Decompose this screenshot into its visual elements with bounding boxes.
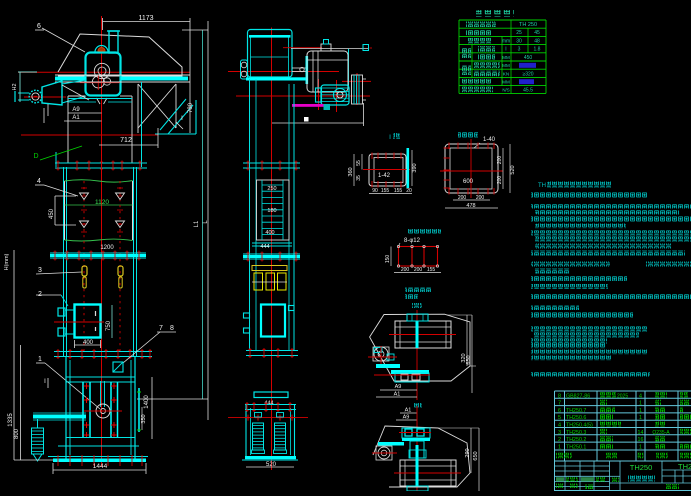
svg-text:TH2: TH2 xyxy=(678,462,691,471)
svg-text:250: 250 xyxy=(267,186,276,192)
svg-text:A1: A1 xyxy=(394,392,401,398)
svg-text:600: 600 xyxy=(463,179,474,185)
svg-text:7: 7 xyxy=(558,401,561,407)
svg-text:155: 155 xyxy=(427,267,436,273)
svg-text:7: 7 xyxy=(159,325,163,332)
svg-text:90: 90 xyxy=(372,188,378,194)
svg-text:KN: KN xyxy=(503,71,509,76)
svg-text:55: 55 xyxy=(356,160,362,166)
svg-text:45: 45 xyxy=(534,30,540,36)
svg-text:A9: A9 xyxy=(72,107,80,113)
svg-text:TH250.2: TH250.2 xyxy=(566,437,586,443)
svg-text:A1: A1 xyxy=(72,115,80,121)
svg-text:Q235-A: Q235-A xyxy=(652,430,670,436)
svg-text:A9: A9 xyxy=(395,384,402,390)
svg-text:200: 200 xyxy=(458,195,467,201)
svg-text:200: 200 xyxy=(476,195,485,201)
svg-text:200: 200 xyxy=(497,156,503,165)
svg-text:6: 6 xyxy=(37,23,41,30)
svg-text:TH250.6: TH250.6 xyxy=(566,415,586,421)
svg-text:I: I xyxy=(389,134,391,141)
svg-text:mm: mm xyxy=(502,39,510,45)
svg-text:444: 444 xyxy=(260,244,269,250)
svg-text:200: 200 xyxy=(497,176,503,185)
svg-text:520: 520 xyxy=(266,462,277,468)
svg-text:H(mm): H(mm) xyxy=(4,253,10,270)
svg-text:400: 400 xyxy=(265,230,274,236)
svg-text:TH250.4(5): TH250.4(5) xyxy=(566,423,593,429)
svg-text:4: 4 xyxy=(558,423,561,429)
svg-text:780: 780 xyxy=(188,102,194,113)
svg-text:8-φ12: 8-φ12 xyxy=(404,238,421,244)
svg-text:35: 35 xyxy=(356,175,362,181)
svg-text:478: 478 xyxy=(466,203,475,209)
svg-text:3: 3 xyxy=(38,267,42,274)
svg-text:I: I xyxy=(44,379,46,385)
svg-text:H2: H2 xyxy=(12,83,18,90)
svg-text:MM: MM xyxy=(502,80,510,85)
svg-text:A9: A9 xyxy=(403,415,410,421)
svg-text:450: 450 xyxy=(524,55,533,61)
svg-text:I: I xyxy=(505,47,506,53)
svg-text:750: 750 xyxy=(106,320,112,331)
svg-text:3: 3 xyxy=(558,430,561,436)
svg-text:L1: L1 xyxy=(194,220,200,227)
svg-text:1: 1 xyxy=(639,401,642,407)
svg-text:30: 30 xyxy=(516,39,522,45)
svg-text:390: 390 xyxy=(412,163,418,172)
svg-text:2: 2 xyxy=(38,291,42,298)
svg-text:712: 712 xyxy=(120,137,132,144)
svg-text:1: 1 xyxy=(639,444,642,450)
svg-text:2025: 2025 xyxy=(617,393,628,399)
svg-text:155: 155 xyxy=(381,188,390,194)
svg-text:TH: TH xyxy=(538,183,546,189)
svg-text:1: 1 xyxy=(639,415,642,421)
svg-text:8: 8 xyxy=(558,393,561,399)
svg-text:3: 3 xyxy=(518,47,521,53)
svg-text:150: 150 xyxy=(385,255,391,264)
svg-text:1173: 1173 xyxy=(138,15,153,22)
svg-text:1200: 1200 xyxy=(100,245,114,251)
svg-text:1: 1 xyxy=(558,444,561,450)
svg-text:650: 650 xyxy=(473,451,479,460)
svg-text:20: 20 xyxy=(406,188,412,194)
svg-text:25: 25 xyxy=(516,30,522,36)
svg-text:1.8: 1.8 xyxy=(534,47,541,53)
svg-text:TH 250: TH 250 xyxy=(519,22,537,28)
svg-text:45.5: 45.5 xyxy=(523,88,533,94)
svg-text:650: 650 xyxy=(466,355,472,364)
svg-text:450: 450 xyxy=(49,208,55,219)
svg-text:MM: MM xyxy=(502,63,510,68)
svg-text:48: 48 xyxy=(534,39,540,45)
svg-text:TH250.7: TH250.7 xyxy=(566,408,586,414)
svg-text:TH250.1: TH250.1 xyxy=(566,444,586,450)
svg-text:5: 5 xyxy=(558,415,561,421)
svg-text:1-42: 1-42 xyxy=(378,173,391,179)
svg-text:D: D xyxy=(33,153,38,160)
svg-text:1120: 1120 xyxy=(95,199,109,206)
svg-text:155: 155 xyxy=(394,188,403,194)
svg-text:290: 290 xyxy=(465,448,471,457)
svg-text:200: 200 xyxy=(401,267,410,273)
svg-text:2: 2 xyxy=(558,437,561,443)
svg-text:TH250.3: TH250.3 xyxy=(566,430,586,436)
svg-text:200: 200 xyxy=(414,267,423,273)
svg-text:1-40: 1-40 xyxy=(483,137,496,143)
svg-text:≥320: ≥320 xyxy=(522,71,533,77)
svg-text:TH250: TH250 xyxy=(630,463,653,472)
svg-text:14: 14 xyxy=(638,430,644,436)
svg-text:6: 6 xyxy=(558,408,561,414)
svg-text:MM: MM xyxy=(502,55,510,60)
svg-text:520: 520 xyxy=(510,165,516,174)
svg-text:8: 8 xyxy=(170,325,174,332)
svg-text:180: 180 xyxy=(267,208,276,214)
svg-text:A1: A1 xyxy=(405,408,412,414)
svg-text:1444: 1444 xyxy=(93,463,108,470)
svg-text:1: 1 xyxy=(38,356,42,363)
svg-text:GB827-86: GB827-86 xyxy=(566,393,590,399)
svg-text:1400: 1400 xyxy=(144,395,150,409)
svg-text:1335: 1335 xyxy=(8,413,14,427)
svg-text:4: 4 xyxy=(37,178,41,185)
svg-text:N/S: N/S xyxy=(502,88,509,93)
svg-text:360: 360 xyxy=(348,167,354,176)
svg-text:16: 16 xyxy=(638,437,644,443)
svg-text:4: 4 xyxy=(639,393,642,399)
svg-text:1: 1 xyxy=(639,408,642,414)
svg-text:800: 800 xyxy=(14,428,20,439)
svg-text:400: 400 xyxy=(83,340,94,346)
svg-text:350: 350 xyxy=(141,414,147,423)
